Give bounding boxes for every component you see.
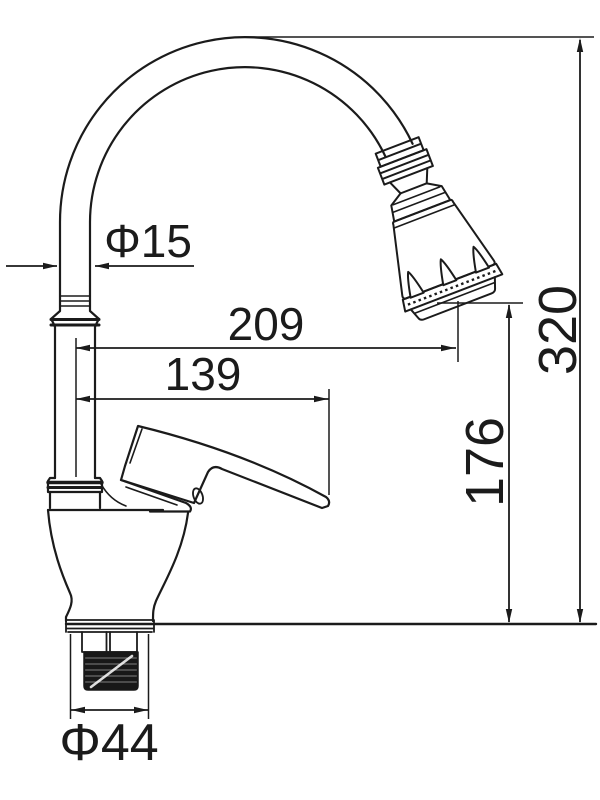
dim-label-overall-height: 320 bbox=[528, 285, 588, 375]
spray-head bbox=[349, 127, 508, 325]
faucet-technical-drawing: Φ15 209 139 176 320 Φ44 bbox=[0, 0, 600, 800]
spout-housing bbox=[101, 480, 205, 512]
faucet-body bbox=[48, 510, 188, 621]
base-flange bbox=[66, 620, 154, 632]
dim-label-pipe-diameter: Φ15 bbox=[104, 215, 192, 267]
dimension-arrowheads bbox=[43, 38, 583, 713]
pipe-base-collar bbox=[48, 478, 102, 508]
dim-label-outlet-height: 176 bbox=[455, 417, 515, 507]
extension-lines bbox=[71, 37, 595, 719]
technical-drawing-page: Φ15 209 139 176 320 Φ44 bbox=[0, 0, 600, 800]
dim-label-handle-reach: 139 bbox=[165, 348, 242, 400]
threaded-shank bbox=[84, 652, 138, 690]
dim-label-spout-reach: 209 bbox=[228, 298, 305, 350]
dim-label-base-diameter: Φ44 bbox=[59, 714, 158, 772]
shank-nut-section bbox=[82, 632, 137, 652]
